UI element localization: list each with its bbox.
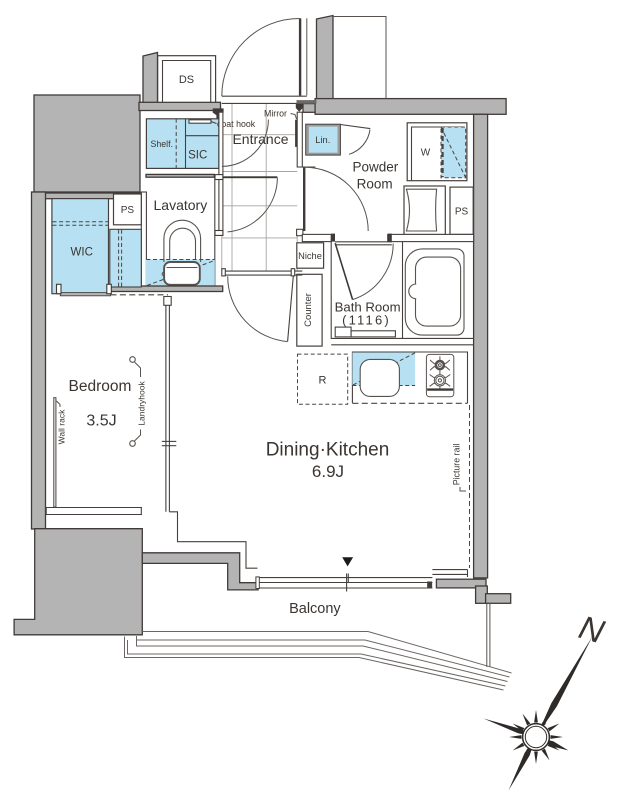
svg-text:6.9J: 6.9J bbox=[312, 462, 344, 481]
svg-text:Dining·Kitchen: Dining·Kitchen bbox=[266, 440, 390, 461]
svg-text:PS: PS bbox=[455, 207, 469, 218]
svg-text:Lin.: Lin. bbox=[315, 135, 330, 145]
svg-text:3.5J: 3.5J bbox=[86, 413, 116, 430]
svg-text:Balcony: Balcony bbox=[289, 601, 341, 617]
svg-text:PS: PS bbox=[121, 205, 135, 216]
svg-text:Counter: Counter bbox=[303, 293, 314, 327]
svg-text:WIC: WIC bbox=[71, 246, 93, 258]
svg-text:Entrance: Entrance bbox=[232, 131, 288, 147]
svg-text:SIC: SIC bbox=[188, 150, 207, 162]
svg-text:Room: Room bbox=[357, 176, 393, 191]
svg-text:Mirror: Mirror bbox=[264, 109, 287, 119]
svg-text:Bedroom: Bedroom bbox=[69, 378, 132, 395]
svg-text:Powder: Powder bbox=[353, 159, 399, 174]
svg-text:R: R bbox=[319, 375, 327, 387]
svg-text:Wall rack: Wall rack bbox=[57, 409, 67, 444]
svg-text:Shelf.: Shelf. bbox=[151, 139, 174, 149]
svg-text:Niche: Niche bbox=[298, 251, 322, 261]
svg-text:(1116): (1116) bbox=[342, 313, 391, 328]
svg-text:Landryhook: Landryhook bbox=[137, 381, 147, 426]
svg-text:Lavatory: Lavatory bbox=[154, 197, 208, 213]
svg-text:Picture rail: Picture rail bbox=[452, 444, 462, 486]
svg-text:W: W bbox=[421, 148, 431, 159]
svg-text:DS: DS bbox=[179, 74, 194, 86]
